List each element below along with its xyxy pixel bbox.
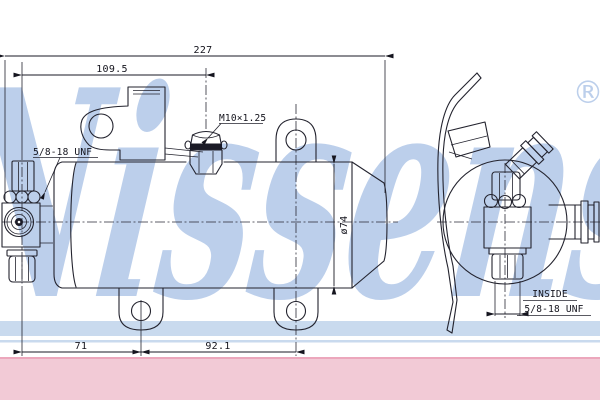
- footer-band: [0, 357, 600, 400]
- label-side-port-thread: 5/8-18 UNF: [33, 147, 92, 158]
- label-end-port-line1: INSIDE: [532, 289, 568, 300]
- registered-trademark-icon: ®: [573, 75, 600, 111]
- dim-port-to-stud: 109.5: [96, 64, 128, 75]
- label-end-port-line2: 5/8-18 UNF: [524, 304, 583, 315]
- watermark-underline-band: [0, 321, 600, 336]
- label-stud-thread: M10×1.25: [219, 113, 266, 124]
- receiver-drier-drawing-page: Nissens ®: [0, 0, 600, 400]
- footer-band-fill: [0, 358, 600, 400]
- dim-tab-spacing: 92.1: [205, 341, 230, 352]
- dim-port-to-tab: 71: [75, 341, 88, 352]
- dim-total-length: 227: [194, 45, 213, 56]
- footer-band-edge: [0, 357, 600, 359]
- technical-drawing: Nissens ®: [0, 0, 600, 400]
- dim-diameter: ø74: [339, 216, 350, 235]
- watermark-underline-thin: [0, 340, 600, 343]
